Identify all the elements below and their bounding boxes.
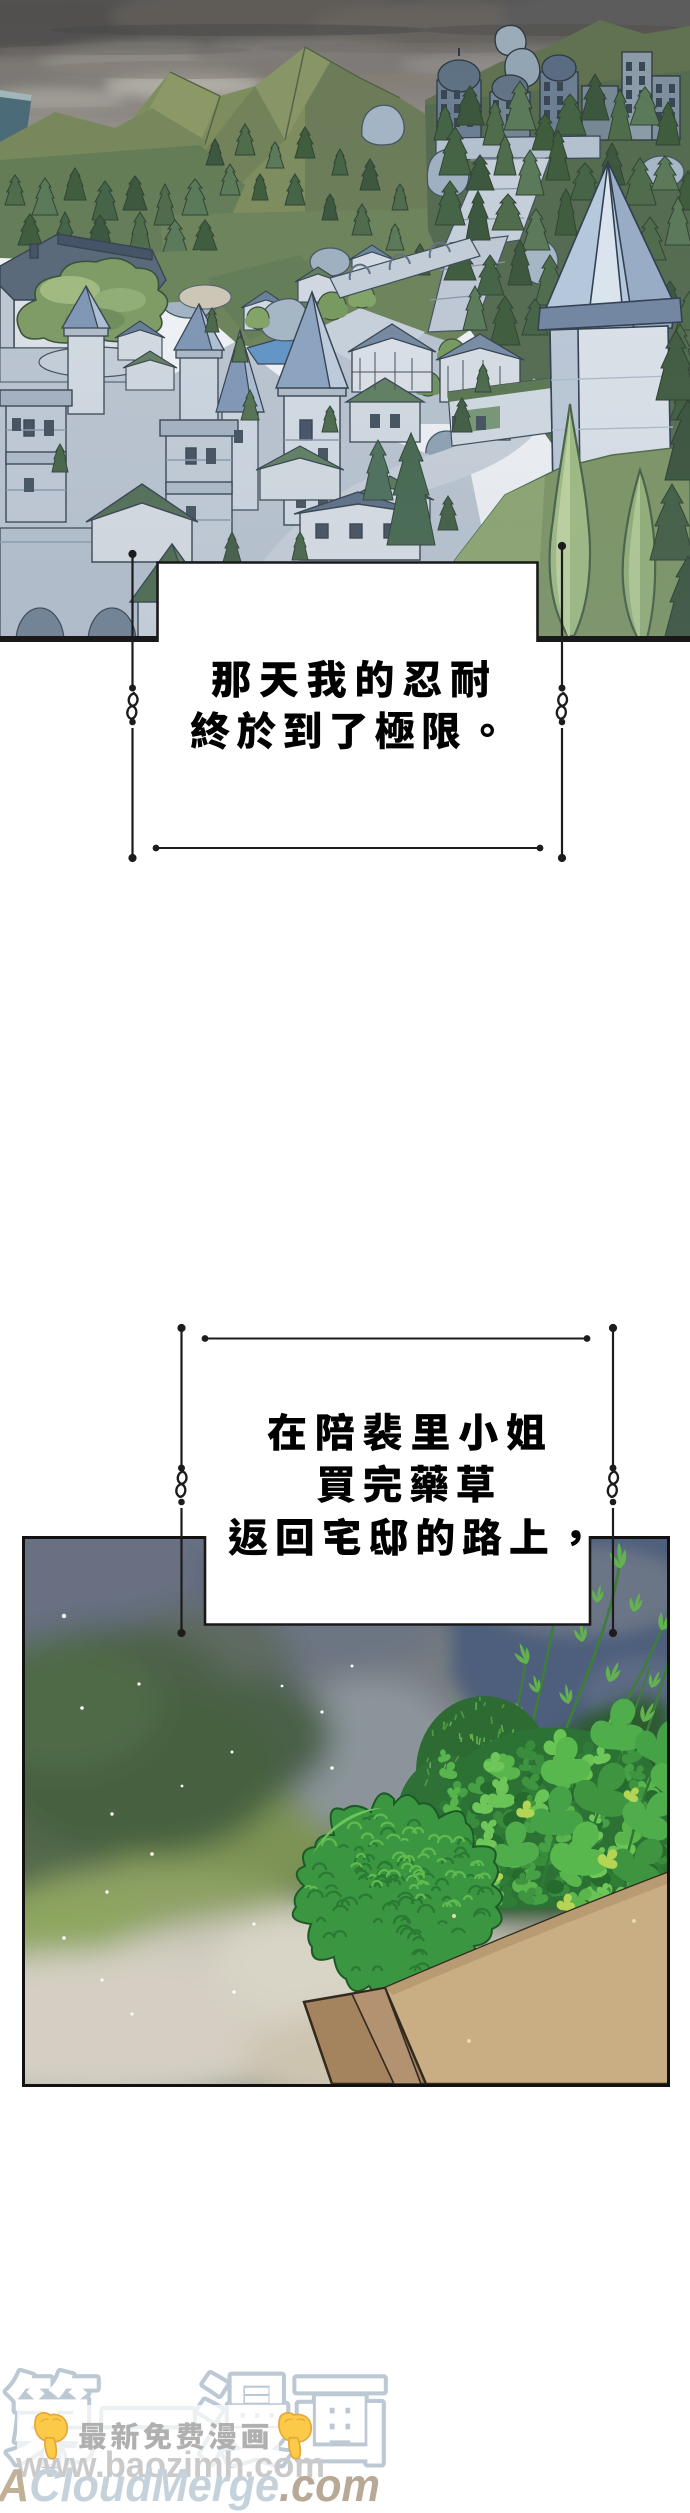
svg-text:ACloudMerge.com: ACloudMerge.com bbox=[0, 2459, 380, 2511]
